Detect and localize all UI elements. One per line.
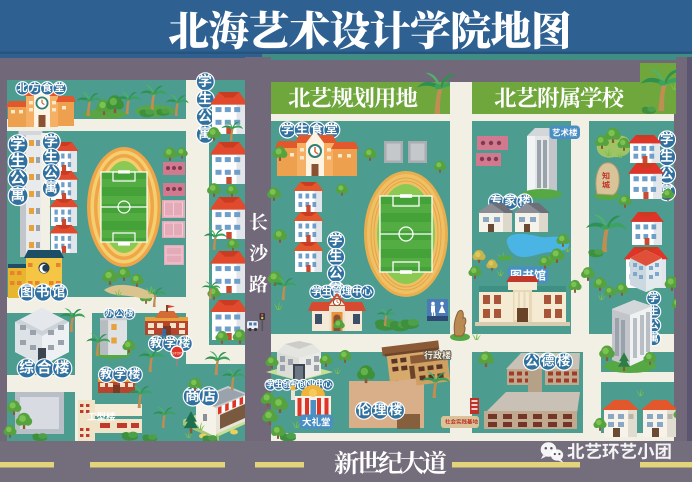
svg-text:STOP: STOP: [172, 352, 182, 356]
